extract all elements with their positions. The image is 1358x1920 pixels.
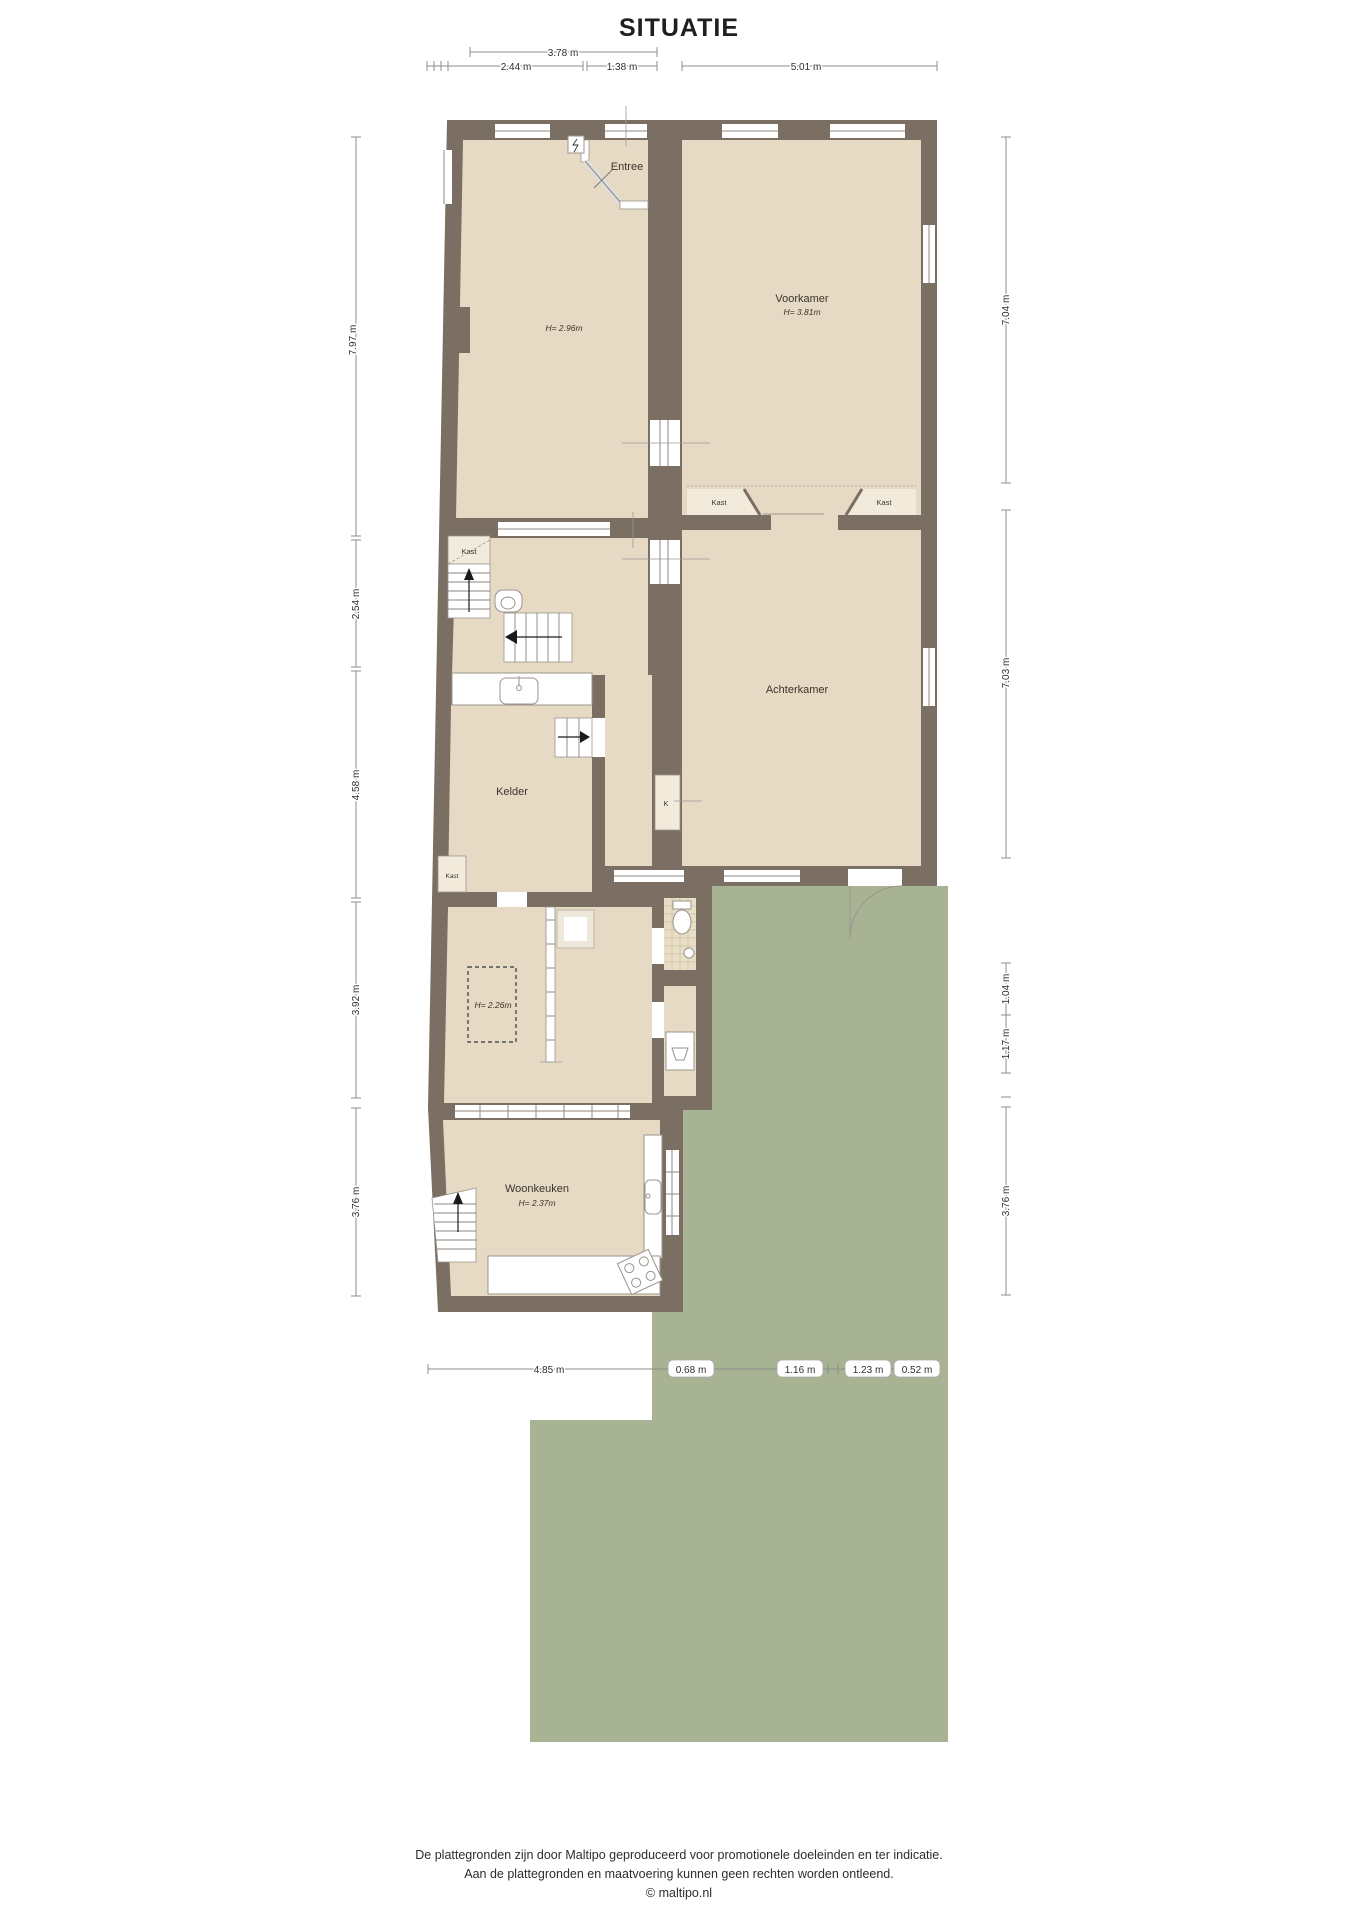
door-toilet [652,928,664,964]
svg-text:3.78 m: 3.78 m [548,48,579,59]
cellar-height-label: H= 2.26m [474,1000,511,1010]
voorkamer-label: Voorkamer [775,293,829,305]
dimension-left-254: 2.54 m [351,540,362,667]
small-sink-fixture [684,948,694,958]
wall-notch [450,307,470,353]
window-kitchen-right [666,1150,679,1235]
dimension-bottom-116: 1.16 m [785,1365,816,1376]
dimension-right-376: 3.76 m [1001,1107,1012,1295]
svg-text:1.17 m: 1.17 m [1001,1029,1012,1060]
dimension-top-138: 1.38 m [587,61,657,73]
room-achterkamer-floor [682,530,921,866]
svg-text:7.03 m: 7.03 m [1001,658,1012,689]
dimension-bottom-052: 0.52 m [902,1365,933,1376]
svg-text:7.04 m: 7.04 m [1001,295,1012,326]
footer-copyright: © maltipo.nl [0,1884,1358,1903]
dimension-left-376: 3.76 m [351,1108,362,1296]
shower-fixture [557,910,594,948]
stairs-kitchen [432,1188,476,1262]
svg-text:1.04 m: 1.04 m [1001,974,1012,1005]
kitchen-sink-fixture [645,1180,661,1214]
stairs-hall-up [448,564,490,618]
dimension-bottom-068: 0.68 m [676,1365,707,1376]
washer-fixture [666,1032,694,1070]
svg-text:7.97 m: 7.97 m [348,325,359,356]
svg-text:3.76 m: 3.76 m [1001,1186,1012,1217]
dimension-bottom-485: 4.85 m [534,1365,565,1376]
svg-text:3.92 m: 3.92 m [351,985,362,1016]
kast-suite-left-label: Kast [711,498,727,507]
entree-label: Entree [611,161,643,173]
corridor-floor [605,675,652,866]
window-achterkamer-right [923,648,935,706]
dimension-top-501: 5.01 m [682,61,937,73]
counter-kelder [452,673,592,705]
svg-text:4.58 m: 4.58 m [351,770,362,801]
window-voorkamer-right [923,225,935,283]
shaft-label: K [663,799,668,808]
footer-line-1: De plattegronden zijn door Maltipo gepro… [0,1846,1358,1865]
woonkeuken-label: Woonkeuken [505,1183,569,1195]
kelder-label: Kelder [496,786,528,798]
svg-text:3.76 m: 3.76 m [351,1187,362,1218]
stairs-kelder-east [555,718,592,757]
floorplan-page: SITUATIE [0,0,1358,1920]
dimension-left-797: 7.97 m [348,137,361,536]
toilet-hall-fixture [495,590,522,612]
window-living-bottom [498,522,610,536]
dimension-right-704: 7.04 m [1001,137,1012,483]
dimension-left-392: 3.92 m [351,902,362,1098]
dimension-top-244: 2.44 m [450,61,583,73]
door-kelder-south [497,892,527,907]
dimension-left-458: 4.58 m [351,671,362,898]
dimension-right-703: 7.03 m [1001,510,1012,858]
livingroom-height-label: H= 2.96m [545,323,582,333]
dimension-top-ticks [427,61,450,71]
dimension-right-117: 1.17 m [1001,1015,1012,1097]
svg-text:1.38 m: 1.38 m [607,62,638,73]
svg-text:5.01 m: 5.01 m [791,62,822,73]
kast-hall-label: Kast [461,547,477,556]
floor-plan-svg: Entree Voorkamer H= 3.81m H= 2.96m Achte… [0,0,1358,1920]
glass-door-central-lower [650,540,680,584]
dimension-bottom-123: 1.23 m [853,1365,884,1376]
window-kitchen-top [455,1105,630,1118]
window-left-wall [437,150,452,204]
footer: De plattegronden zijn door Maltipo gepro… [0,1846,1358,1903]
voorkamer-height-label: H= 3.81m [783,307,820,317]
door-kelder-east [592,718,605,757]
kast-kelder-label: Kast [445,873,458,880]
svg-text:2.44 m: 2.44 m [501,62,532,73]
dimension-top-378: 3.78 m [470,47,657,59]
achterkamer-label: Achterkamer [766,684,829,696]
suite-door-opening [771,515,838,530]
dimension-bottom: 4.85 m 0.68 m 1.16 m 1.23 m 0.52 m [428,1360,940,1377]
woonkeuken-height-label: H= 2.37m [518,1198,555,1208]
dimension-right-104: 1.04 m [1001,963,1012,1015]
door-washroom [652,1002,664,1038]
kast-suite-right-label: Kast [876,498,892,507]
svg-text:2.54 m: 2.54 m [351,589,362,620]
footer-line-2: Aan de plattegronden en maatvoering kunn… [0,1865,1358,1884]
stairs-hall-down [504,613,572,662]
